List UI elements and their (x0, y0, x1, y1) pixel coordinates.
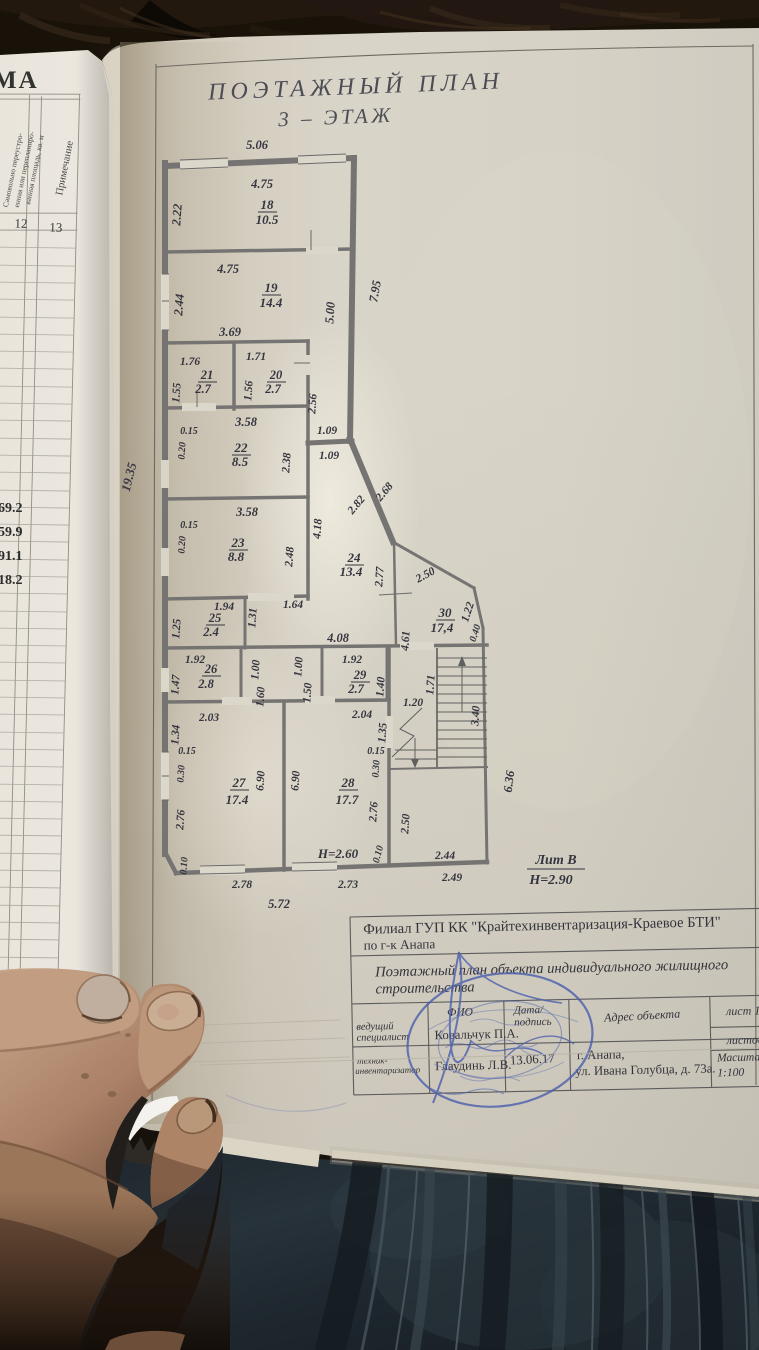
svg-text:Лит В: Лит В (534, 853, 576, 868)
svg-text:2.04: 2.04 (351, 709, 372, 721)
svg-text:лист 1: лист 1 (725, 1003, 759, 1018)
svg-text:3.58: 3.58 (235, 505, 259, 519)
svg-text:Н=2.90: Н=2.90 (528, 873, 572, 888)
svg-text:2.7: 2.7 (347, 682, 364, 696)
svg-text:17.4: 17.4 (226, 792, 249, 807)
svg-text:2.8: 2.8 (197, 677, 214, 691)
svg-text:1.09: 1.09 (317, 425, 337, 437)
svg-text:5.06: 5.06 (246, 138, 269, 152)
svg-text:13.4: 13.4 (340, 564, 363, 579)
svg-text:1.35: 1.35 (376, 722, 389, 743)
svg-text:3.40: 3.40 (469, 705, 482, 727)
svg-text:29: 29 (353, 668, 367, 682)
svg-text:69.2: 69.2 (0, 501, 23, 516)
svg-text:2.44: 2.44 (171, 293, 187, 317)
svg-text:25: 25 (208, 611, 222, 625)
svg-text:ведущий: ведущий (356, 1021, 394, 1033)
svg-text:2.49: 2.49 (441, 872, 462, 884)
svg-text:1.71: 1.71 (246, 351, 266, 363)
svg-text:24: 24 (347, 550, 362, 565)
svg-text:2.50: 2.50 (399, 813, 412, 835)
svg-text:8.5: 8.5 (232, 454, 249, 469)
svg-text:13: 13 (49, 219, 62, 234)
svg-text:подпись: подпись (514, 1016, 552, 1029)
svg-text:26: 26 (204, 662, 218, 676)
svg-text:10.5: 10.5 (256, 212, 279, 227)
svg-text:1.20: 1.20 (403, 697, 423, 709)
svg-text:28: 28 (341, 775, 356, 790)
svg-text:5.00: 5.00 (322, 301, 338, 325)
svg-text:4.08: 4.08 (326, 631, 350, 645)
svg-text:18.2: 18.2 (0, 573, 23, 588)
svg-text:специалист: специалист (356, 1032, 409, 1044)
svg-text:14.4: 14.4 (260, 295, 283, 310)
svg-text:листов: листов (726, 1032, 759, 1047)
svg-text:1.40: 1.40 (374, 676, 387, 697)
svg-text:0.20: 0.20 (176, 536, 188, 554)
svg-text:0.30: 0.30 (370, 760, 382, 778)
svg-text:по г-к Анапа: по г-к Анапа (363, 936, 435, 952)
svg-text:6.90: 6.90 (289, 770, 302, 791)
svg-text:3.69: 3.69 (218, 325, 242, 339)
svg-text:2.22: 2.22 (169, 203, 185, 227)
svg-text:Масштаб: Масштаб (716, 1051, 759, 1064)
svg-text:59.9: 59.9 (0, 525, 23, 540)
svg-text:12: 12 (14, 216, 27, 231)
svg-text:Н=2.60: Н=2.60 (317, 846, 359, 861)
svg-text:3.58: 3.58 (234, 415, 258, 429)
svg-text:19: 19 (265, 280, 279, 295)
svg-text:1.00: 1.00 (249, 659, 262, 680)
svg-text:4.61: 4.61 (399, 630, 412, 652)
svg-text:1.76: 1.76 (180, 356, 200, 368)
svg-text:23: 23 (231, 535, 246, 550)
svg-text:27: 27 (232, 775, 247, 790)
svg-text:1:100: 1:100 (717, 1067, 744, 1080)
svg-text:30: 30 (438, 605, 453, 620)
svg-text:0.15: 0.15 (178, 746, 196, 757)
svg-text:2.48: 2.48 (283, 546, 296, 568)
svg-text:2.44: 2.44 (434, 850, 455, 862)
svg-text:0.30: 0.30 (175, 765, 187, 783)
svg-text:1.34: 1.34 (169, 724, 182, 745)
svg-text:2.4: 2.4 (202, 625, 219, 639)
svg-text:2.38: 2.38 (280, 452, 293, 474)
svg-text:1.25: 1.25 (170, 618, 183, 639)
svg-text:5.72: 5.72 (268, 897, 290, 911)
svg-text:2.76: 2.76 (174, 809, 187, 831)
svg-text:1.50: 1.50 (301, 682, 314, 703)
svg-text:0.10: 0.10 (178, 857, 190, 875)
svg-text:2.7: 2.7 (264, 382, 281, 396)
svg-text:3 – ЭТАЖ: 3 – ЭТАЖ (277, 103, 395, 131)
svg-text:20: 20 (269, 368, 283, 382)
svg-text:18: 18 (261, 197, 275, 212)
svg-text:1.92: 1.92 (342, 654, 362, 666)
svg-text:2.56: 2.56 (306, 393, 319, 415)
svg-text:4.18: 4.18 (311, 518, 324, 540)
svg-text:ул. Ивана Голубца, д. 73а.: ул. Ивана Голубца, д. 73а. (575, 1061, 716, 1078)
svg-text:8.8: 8.8 (228, 549, 245, 564)
svg-text:0.15: 0.15 (180, 520, 198, 531)
svg-text:2.76: 2.76 (367, 801, 380, 823)
svg-text:0.15: 0.15 (180, 426, 198, 437)
svg-text:2.7: 2.7 (194, 382, 211, 396)
svg-text:0.20: 0.20 (176, 442, 188, 460)
svg-text:21: 21 (200, 368, 214, 382)
svg-text:91.1: 91.1 (0, 549, 23, 564)
svg-text:1.00: 1.00 (292, 656, 305, 677)
svg-text:2.78: 2.78 (231, 879, 252, 891)
svg-text:17.7: 17.7 (336, 792, 359, 807)
svg-text:17,4: 17,4 (431, 620, 454, 635)
svg-text:1.60: 1.60 (254, 686, 267, 707)
svg-text:1.92: 1.92 (185, 654, 205, 666)
svg-text:1.71: 1.71 (424, 674, 437, 695)
svg-text:4.75: 4.75 (216, 262, 239, 276)
svg-text:1.47: 1.47 (169, 673, 182, 695)
svg-text:0.15: 0.15 (367, 746, 385, 757)
svg-text:6.36: 6.36 (501, 769, 518, 793)
svg-text:1.56: 1.56 (242, 380, 255, 401)
svg-text:1.09: 1.09 (319, 450, 339, 462)
svg-text:1.55: 1.55 (170, 382, 183, 403)
svg-text:1.31: 1.31 (246, 607, 259, 628)
svg-text:2.03: 2.03 (198, 712, 219, 724)
svg-text:6.90: 6.90 (254, 770, 267, 791)
svg-text:1.64: 1.64 (283, 599, 303, 611)
svg-text:4.75: 4.75 (250, 177, 273, 191)
svg-text:2.77: 2.77 (373, 565, 387, 588)
svg-text:22: 22 (234, 440, 249, 455)
svg-text:2.73: 2.73 (337, 879, 358, 891)
svg-text:МА: МА (0, 67, 39, 94)
